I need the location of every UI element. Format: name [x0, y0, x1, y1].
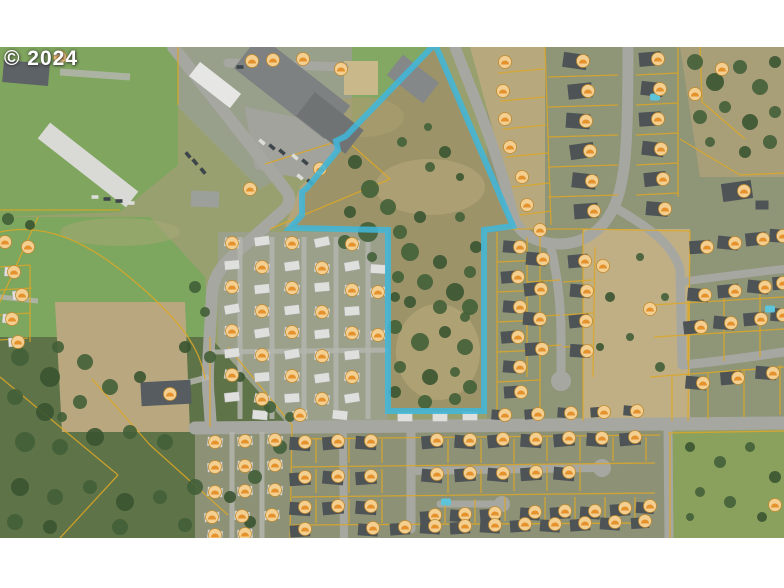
- parcel-marker-icon: [206, 511, 219, 524]
- parcel-marker-icon: [12, 336, 25, 349]
- parcel-marker-icon: [584, 145, 597, 158]
- parcel-marker-icon: [725, 317, 738, 330]
- parcel-marker-icon: [316, 306, 329, 319]
- parcel-marker-icon: [164, 388, 177, 401]
- parcel-marker-icon: [499, 56, 512, 69]
- parcel-marker-icon: [697, 377, 710, 390]
- parcel-marker-icon: [529, 506, 542, 519]
- parcel-marker-icon: [738, 185, 751, 198]
- parcel-marker-icon: [559, 505, 572, 518]
- parcel-marker-icon: [346, 327, 359, 340]
- parcel-marker-icon: [16, 289, 29, 302]
- parcel-marker-icon: [226, 237, 239, 250]
- parcel-marker-icon: [497, 433, 510, 446]
- parcel-marker-icon: [659, 203, 672, 216]
- parcel-marker-icon: [655, 143, 668, 156]
- parcel-marker-icon: [459, 508, 472, 521]
- parcel-marker-icon: [644, 303, 657, 316]
- parcel-marker-icon: [332, 500, 345, 513]
- parcel-marker-icon: [489, 519, 502, 532]
- parcel-marker-icon: [459, 520, 472, 533]
- parcel-marker-icon: [579, 517, 592, 530]
- parcel-marker-icon: [246, 55, 259, 68]
- parcel-marker-icon: [652, 113, 665, 126]
- parcel-marker-icon: [499, 409, 512, 422]
- top-margin: [0, 0, 784, 47]
- parcel-marker-icon: [580, 115, 593, 128]
- parcel-marker-icon: [335, 63, 348, 76]
- parcel-marker-icon: [695, 321, 708, 334]
- parcel-marker-icon: [286, 237, 299, 250]
- parcel-marker-icon: [256, 393, 269, 406]
- parcel-marker-icon: [652, 53, 665, 66]
- parcel-marker-icon: [516, 171, 529, 184]
- parcel-marker-icon: [332, 435, 345, 448]
- parcel-marker-icon: [365, 470, 378, 483]
- parcel-marker-icon: [266, 509, 279, 522]
- parcel-marker-icon: [316, 350, 329, 363]
- parcel-marker-icon: [431, 434, 444, 447]
- parcel-marker-icon: [299, 501, 312, 514]
- parcel-marker-icon: [598, 406, 611, 419]
- parcel-marker-icon: [589, 505, 602, 518]
- parcel-marker-icon: [563, 432, 576, 445]
- parcel-marker-icon: [365, 500, 378, 513]
- parcel-marker-icon: [629, 431, 642, 444]
- parcel-marker-icon: [534, 313, 547, 326]
- parcel-marker-icon: [239, 528, 252, 539]
- parcel-marker-icon: [515, 386, 528, 399]
- parcel-marker-icon: [537, 253, 550, 266]
- parcel-marker-icon: [431, 468, 444, 481]
- parcel-marker-icon: [8, 266, 21, 279]
- parcel-marker-icon: [757, 233, 770, 246]
- parcel-marker-icon: [209, 486, 222, 499]
- parcel-marker-icon: [689, 88, 702, 101]
- parcel-marker-icon: [346, 284, 359, 297]
- copyright-watermark: © 2024: [4, 47, 78, 71]
- parcel-marker-icon: [209, 529, 222, 539]
- parcel-marker-icon: [286, 326, 299, 339]
- parcel-marker-icon: [716, 63, 729, 76]
- parcel-marker-icon: [497, 467, 510, 480]
- parcel-marker-icon: [534, 224, 547, 237]
- parcel-marker-icon: [563, 466, 576, 479]
- parcel-marker-icon: [332, 470, 345, 483]
- parcel-marker-icon: [581, 285, 594, 298]
- parcel-marker-icon: [769, 499, 782, 512]
- parcel-marker-icon: [504, 141, 517, 154]
- parcel-marker-icon: [286, 370, 299, 383]
- parcel-marker-icon: [239, 485, 252, 498]
- parcel-marker-icon: [297, 53, 310, 66]
- parcel-marker-icon: [532, 408, 545, 421]
- parcel-marker-icon: [644, 500, 657, 513]
- parcel-marker-icon: [22, 241, 35, 254]
- parcel-marker-icon: [372, 286, 385, 299]
- parcel-marker-icon: [579, 255, 592, 268]
- parcel-marker-icon: [619, 502, 632, 515]
- parcel-marker-icon: [586, 175, 599, 188]
- parcel-marker-icon: [299, 523, 312, 536]
- parcel-marker-icon: [226, 325, 239, 338]
- parcel-marker-icon: [631, 405, 644, 418]
- parcel-marker-icon: [226, 369, 239, 382]
- parcel-marker-icon: [577, 55, 590, 68]
- parcel-marker-icon: [565, 407, 578, 420]
- parcel-marker-icon: [464, 467, 477, 480]
- aerial-map[interactable]: © 2024: [0, 47, 784, 538]
- parcel-marker-icon: [530, 466, 543, 479]
- parcel-marker-icon: [286, 282, 299, 295]
- parcel-marker-icon: [499, 113, 512, 126]
- parcel-marker-icon: [549, 518, 562, 531]
- parcel-marker-icon: [346, 238, 359, 251]
- parcel-marker-icon: [729, 285, 742, 298]
- parcel-marker-icon: [464, 434, 477, 447]
- parcel-marker-icon: [588, 205, 601, 218]
- parcel-marker-icon: [596, 432, 609, 445]
- parcel-marker-icon: [269, 434, 282, 447]
- parcel-marker-icon: [514, 241, 527, 254]
- parcel-marker-icon: [299, 471, 312, 484]
- parcel-marker-icon: [701, 241, 714, 254]
- parcel-marker-icon: [530, 433, 543, 446]
- parcel-marker-icon: [316, 393, 329, 406]
- parcel-marker-icon: [429, 520, 442, 533]
- parcel-marker-icon: [267, 54, 280, 67]
- parcel-marker-icon: [535, 283, 548, 296]
- parcel-marker-icon: [244, 183, 257, 196]
- parcel-marker-icon: [639, 515, 652, 528]
- parcel-marker-icon: [256, 305, 269, 318]
- parcel-marker-icon: [512, 331, 525, 344]
- parcel-marker-icon: [519, 518, 532, 531]
- bottom-margin: [0, 538, 784, 588]
- parcel-marker-icon: [597, 260, 610, 273]
- parcel-marker-icon: [256, 349, 269, 362]
- parcel-marker-icon: [699, 289, 712, 302]
- parcel-marker-icon: [521, 199, 534, 212]
- parcel-marker-icon: [654, 83, 667, 96]
- parcel-marker-icon: [759, 281, 772, 294]
- parcel-marker-icon: [299, 436, 312, 449]
- parcel-marker-icon: [489, 507, 502, 520]
- parcel-marker-icon: [514, 361, 527, 374]
- parcel-marker-icon: [657, 173, 670, 186]
- parcel-marker-icon: [256, 261, 269, 274]
- parcel-marker-icon: [755, 313, 768, 326]
- parcel-marker-icon: [365, 435, 378, 448]
- parcel-marker-icon: [294, 409, 307, 422]
- parcel-marker-icon: [580, 315, 593, 328]
- parcel-marker-icon: [367, 522, 380, 535]
- screenshot-page: © 2024: [0, 0, 784, 588]
- parcel-marker-icon: [512, 271, 525, 284]
- parcel-marker-icon: [346, 371, 359, 384]
- parcel-marker-icon: [372, 329, 385, 342]
- parcel-marker-icon: [239, 460, 252, 473]
- parcel-marker-icon: [239, 435, 252, 448]
- parcel-marker-icon: [732, 372, 745, 385]
- parcel-marker-icon: [226, 281, 239, 294]
- parcel-marker-icon: [582, 85, 595, 98]
- parcel-marker-icon: [767, 367, 780, 380]
- parcel-marker-icon: [209, 461, 222, 474]
- aerial-imagery: [0, 47, 784, 538]
- parcel-marker-icon: [316, 262, 329, 275]
- parcel-marker-icon: [209, 436, 222, 449]
- parcel-marker-icon: [581, 345, 594, 358]
- parcel-marker-icon: [236, 510, 249, 523]
- parcel-marker-icon: [497, 85, 510, 98]
- parcel-marker-icon: [6, 313, 19, 326]
- parcel-marker-icon: [609, 516, 622, 529]
- parcel-marker-icon: [0, 236, 12, 249]
- parcel-marker-icon: [269, 484, 282, 497]
- parcel-marker-icon: [399, 521, 412, 534]
- parcel-marker-icon: [536, 343, 549, 356]
- parcel-marker-icon: [729, 237, 742, 250]
- parcel-marker-icon: [269, 459, 282, 472]
- parcel-marker-icon: [514, 301, 527, 314]
